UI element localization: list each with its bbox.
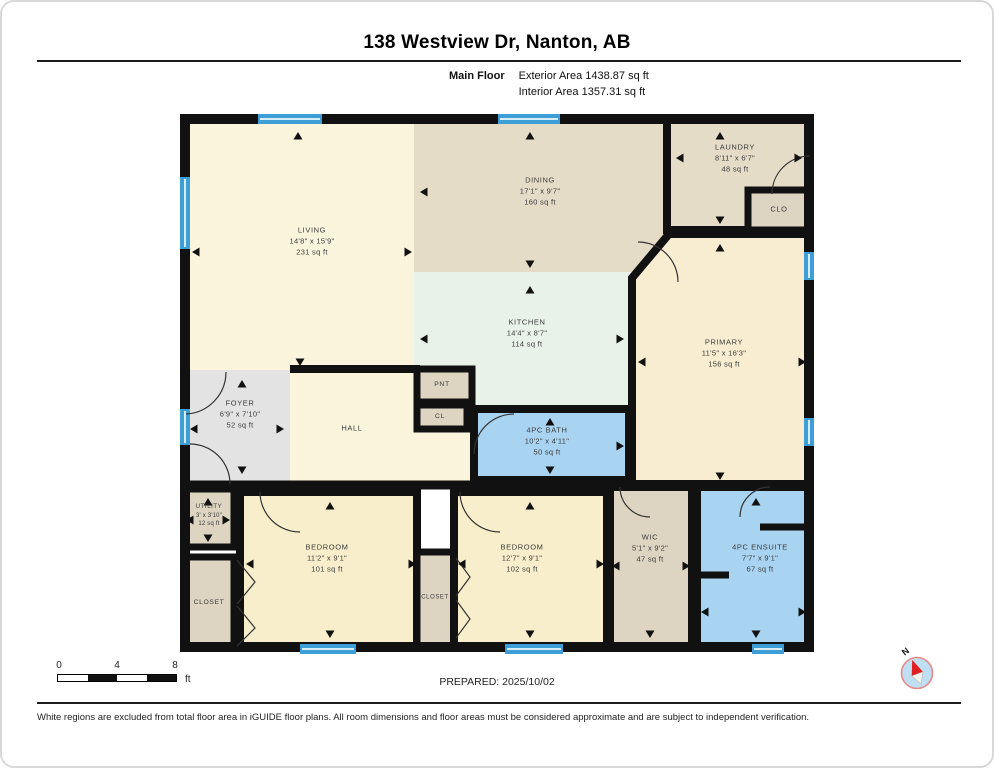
prepared-date: PREPARED: 2025/10/02	[2, 676, 992, 688]
room-label-hall: HALL	[341, 424, 362, 435]
room-wic-fill	[610, 487, 692, 647]
room-label-bath: 4PC BATH 10'2" x 4'11" 50 sq ft	[525, 426, 569, 459]
room-label-cl: CL	[435, 412, 445, 422]
room-label-bedroom2: BEDROOM 12'7" x 9'1" 102 sq ft	[501, 543, 544, 576]
page-title: 138 Westview Dr, Nanton, AB	[2, 32, 992, 54]
room-label-kitchen: KITCHEN 14'4" x 8'7" 114 sq ft	[507, 318, 548, 351]
room-label-foyer: FOYER 6'9" x 7'10" 52 sq ft	[220, 399, 261, 432]
room-label-closet-left: CLOSET	[194, 598, 225, 608]
floorplan-page: 138 Westview Dr, Nanton, AB Main Floor E…	[0, 0, 994, 768]
room-label-pnt: PNT	[434, 380, 449, 390]
room-label-laundry: LAUNDRY 8'11" x 6'7" 48 sq ft	[715, 143, 755, 176]
compass-north-label: N	[900, 646, 911, 658]
room-label-living: LIVING 14'8" x 15'9" 231 sq ft	[289, 226, 334, 259]
floorplan-drawing	[180, 114, 814, 654]
room-label-utility: UTILITY 3' x 3'10" 12 sq ft	[196, 503, 223, 529]
room-label-primary: PRIMARY 11'5" x 16'3" 156 sq ft	[702, 338, 746, 371]
compass-icon: N	[892, 640, 942, 698]
room-label-clo: CLO	[770, 205, 787, 216]
scale-tick-0: 0	[56, 660, 62, 671]
room-label-closet-mid: CLOSET	[421, 594, 449, 603]
interior-area: Interior Area 1357.31 sq ft	[519, 84, 649, 100]
room-label-ensuite: 4PC ENSUITE 7'7" x 9'1" 67 sq ft	[732, 543, 788, 576]
scale-tick-4: 4	[114, 660, 120, 671]
room-label-dining: DINING 17'1" x 9'7" 160 sq ft	[520, 176, 561, 209]
scale-tick-8: 8	[172, 660, 178, 671]
room-label-bedroom1: BEDROOM 11'2" x 9'1" 101 sq ft	[306, 543, 349, 576]
exterior-area: Exterior Area 1438.87 sq ft	[519, 68, 649, 84]
floor-label: Main Floor	[449, 68, 505, 84]
disclaimer-text: White regions are excluded from total fl…	[37, 712, 967, 723]
floor-summary: Main Floor Exterior Area 1438.87 sq ft I…	[449, 68, 649, 100]
header-divider	[37, 60, 961, 62]
room-label-wic: WIC 5'1" x 9'2" 47 sq ft	[632, 533, 668, 566]
footer-divider	[37, 702, 961, 704]
floorplan-canvas: LIVING 14'8" x 15'9" 231 sq ft DINING 17…	[180, 114, 814, 654]
compass: N	[892, 640, 942, 698]
